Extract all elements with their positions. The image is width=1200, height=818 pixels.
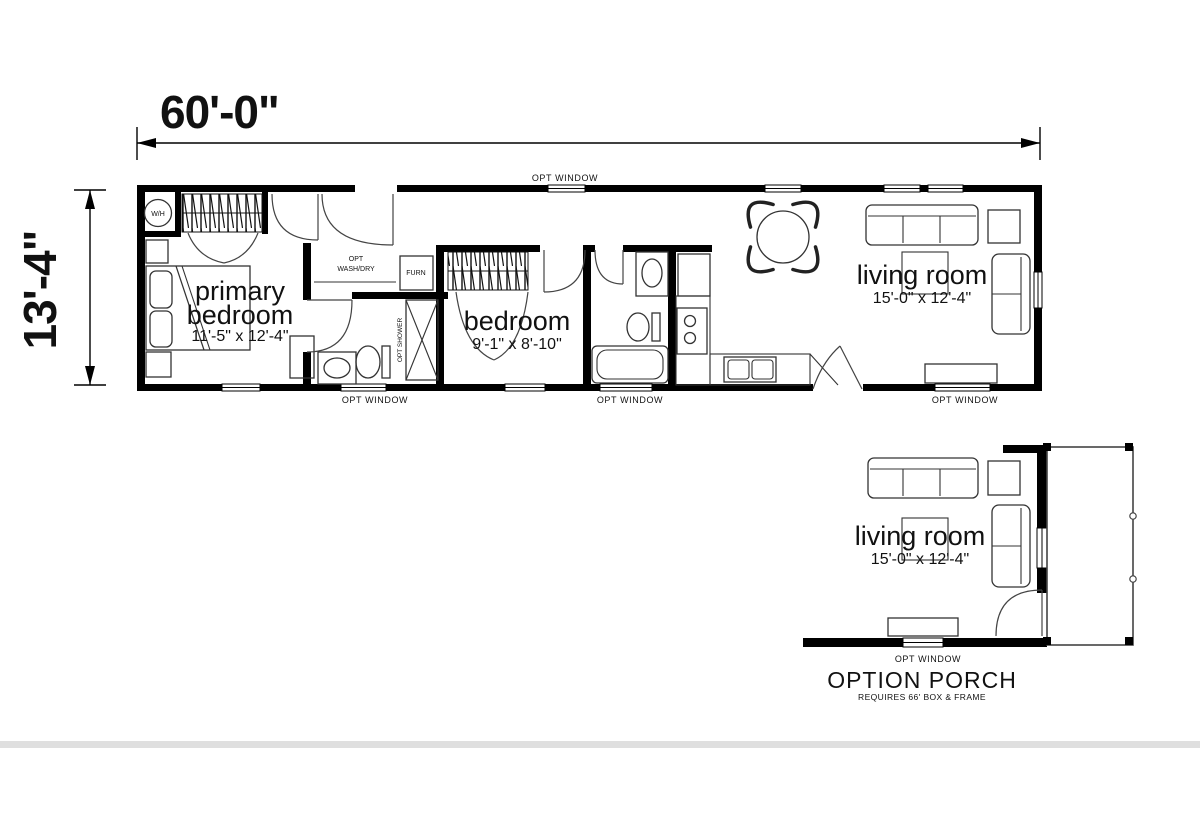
primary-bedroom-label: primary bedroom 11'-5" x 12'-4": [187, 276, 294, 345]
wash-dry-label-line2: WASH/DRY: [337, 266, 375, 273]
porch-rail-post: [1130, 576, 1136, 582]
arrow-down-icon: [85, 366, 95, 385]
dining-table: [748, 202, 818, 272]
floor-plan-page: 60'-0" 13'-4" OPT WINDOW: [0, 0, 1200, 818]
porch-post: [1043, 443, 1051, 451]
window: [505, 384, 545, 391]
opt-shower-label: OPT SHOWER: [397, 318, 404, 363]
stove: [677, 308, 707, 354]
arrow-left-icon: [137, 138, 156, 148]
bathtub: [592, 346, 668, 383]
bedroom-name: bedroom: [464, 306, 571, 336]
window: [903, 638, 943, 647]
porch-outline: [1043, 443, 1136, 645]
window: [884, 185, 920, 192]
window: [1037, 528, 1047, 568]
door-arc: [322, 194, 393, 245]
bathroom-sink: [636, 252, 668, 296]
living-room-label: living room 15'-0" x 12'-4": [857, 260, 988, 307]
entry-door-arc: [813, 346, 862, 389]
loveseat: [992, 254, 1030, 334]
armchair: [988, 210, 1020, 243]
opt-shower: OPT SHOWER: [397, 300, 438, 380]
porch-post: [1125, 443, 1133, 451]
option-porch-title: OPTION PORCH: [827, 667, 1017, 693]
porch-living-room-dims: 15'-0" x 12'-4": [871, 551, 969, 568]
water-heater: W/H: [145, 200, 172, 227]
primary-bedroom-name-line2: bedroom: [187, 300, 294, 330]
armchair: [988, 461, 1020, 495]
window-right-wall: [1034, 272, 1042, 308]
nightstand: [146, 240, 168, 263]
height-dimension-label: 13'-4": [14, 231, 66, 350]
option-porch-section: living room 15'-0" x 12'-4" OPT WINDOW O…: [803, 443, 1136, 702]
bedroom-label: bedroom 9'-1" x 8'-10": [464, 306, 571, 353]
kitchen-counter: [676, 296, 838, 385]
loveseat: [992, 505, 1030, 587]
window: [341, 384, 386, 391]
width-dimension-label: 60'-0": [160, 86, 279, 138]
porch-rail-post: [1130, 513, 1136, 519]
window: [765, 185, 801, 192]
wash-dry-label-line1: OPT: [349, 256, 364, 263]
nightstand: [146, 352, 171, 377]
door-arc: [595, 250, 623, 284]
height-dimension: 13'-4": [14, 190, 106, 385]
door-arc: [996, 590, 1042, 636]
toilet: [356, 346, 390, 378]
wash-dry-area: OPT WASH/DRY: [314, 256, 396, 282]
arrow-right-icon: [1021, 138, 1040, 148]
opt-window-label-top: OPT WINDOW: [532, 173, 598, 183]
porch-post: [1125, 637, 1133, 645]
door-arc: [544, 250, 585, 292]
floor-plan-svg: 60'-0" 13'-4" OPT WINDOW: [0, 0, 1200, 818]
living-room-name: living room: [857, 260, 988, 290]
console-table: [925, 364, 997, 383]
window: [935, 384, 990, 391]
furnace-label: FURN: [406, 270, 425, 277]
opt-window-label-bottom-3: OPT WINDOW: [932, 395, 998, 405]
bathroom-sink: [318, 352, 356, 384]
refrigerator: [678, 254, 710, 296]
sofa: [868, 458, 978, 498]
living-room-dims: 15'-0" x 12'-4": [873, 290, 971, 307]
water-heater-label: W/H: [151, 211, 165, 218]
window: [928, 185, 963, 192]
kitchen-sink: [724, 357, 776, 382]
page-divider: [0, 741, 1200, 748]
console-table: [888, 618, 958, 636]
width-dimension: 60'-0": [137, 86, 1040, 160]
primary-closet: [182, 194, 262, 263]
opt-window-label-porch: OPT WINDOW: [895, 654, 961, 664]
porch-post: [1043, 637, 1051, 645]
porch-living-room-name: living room: [855, 521, 986, 551]
door-opening: [355, 185, 397, 193]
bedroom-dims: 9'-1" x 8'-10": [472, 336, 562, 353]
opt-window-label-bottom-1: OPT WINDOW: [342, 395, 408, 405]
furnace-closet: FURN: [400, 256, 433, 290]
window: [222, 384, 260, 391]
option-porch-subtitle: REQUIRES 66' BOX & FRAME: [858, 692, 986, 702]
door-arc: [272, 194, 318, 240]
toilet: [627, 313, 660, 341]
window: [548, 185, 585, 192]
primary-bedroom-dims: 11'-5" x 12'-4": [191, 328, 288, 345]
sofa: [866, 205, 978, 245]
opt-window-label-bottom-2: OPT WINDOW: [597, 395, 663, 405]
arrow-up-icon: [85, 190, 95, 209]
window: [600, 384, 652, 391]
